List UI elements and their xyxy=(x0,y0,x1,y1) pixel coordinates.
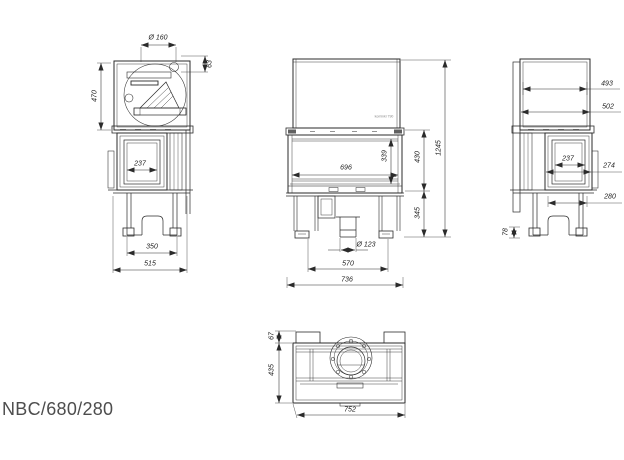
top-view-outline xyxy=(293,332,405,406)
dim-label-body-depth: 435 xyxy=(269,364,276,376)
dim-label-base-height: 345 xyxy=(415,207,422,219)
dim-label-depth-overall: 502 xyxy=(602,104,614,111)
left-side-view-outline xyxy=(108,61,193,236)
technical-drawing-canvas: Ø 160 63 470 237 350 515 kominki 790 696… xyxy=(0,0,624,460)
dim-label-overall-height: 1245 xyxy=(436,140,443,156)
dim-label-air-inlet-diameter: Ø 123 xyxy=(356,242,375,249)
dim-label-upper-body-height: 470 xyxy=(92,90,99,102)
dim-label-left-glass-width: 237 xyxy=(134,161,146,168)
dim-label-side-frame-width: 274 xyxy=(603,163,615,170)
fireplace-dimension-drawing xyxy=(0,0,624,460)
dim-label-glass-height: 339 xyxy=(382,150,389,162)
brand-logo-text: kominki 790 xyxy=(375,115,394,119)
dim-label-flue-diameter: Ø 160 xyxy=(148,35,167,42)
dim-label-lower-depth: 280 xyxy=(604,194,616,201)
dim-label-overall-depth: 515 xyxy=(144,261,156,268)
front-view-dimension-lines xyxy=(287,60,451,288)
dim-label-depth-top: 493 xyxy=(601,81,613,88)
dim-label-right-glass-width: 237 xyxy=(562,156,574,163)
dim-label-flue-offset: 63 xyxy=(207,60,214,68)
dim-label-overall-width: 736 xyxy=(341,277,353,284)
dim-label-left-base-width: 350 xyxy=(146,244,158,251)
dim-label-front-panel-depth: 67 xyxy=(269,332,276,340)
dim-label-glass-width: 696 xyxy=(340,165,352,172)
front-view-outline xyxy=(286,59,404,238)
dim-label-foot-height: 78 xyxy=(503,228,510,236)
dim-label-top-overall-width: 752 xyxy=(344,407,356,414)
dim-label-firebox-height: 430 xyxy=(415,151,422,163)
model-designation: NBC/680/280 xyxy=(2,399,113,420)
dim-label-front-base-width: 570 xyxy=(342,261,354,268)
